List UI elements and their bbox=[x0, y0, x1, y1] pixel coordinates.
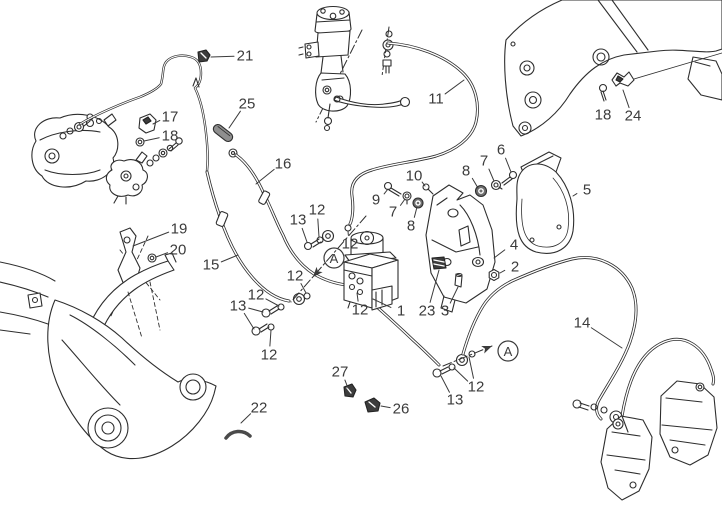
callout-label: 7 bbox=[480, 153, 488, 170]
nut-18 bbox=[136, 138, 144, 146]
leader-line bbox=[241, 414, 251, 423]
callout-21: 21 bbox=[211, 48, 253, 65]
leader-line bbox=[573, 194, 577, 196]
callout-label: 25 bbox=[239, 96, 256, 113]
brake-hose-15 bbox=[207, 172, 310, 305]
callout-label: 14 bbox=[574, 315, 591, 332]
callout-label: 19 bbox=[171, 221, 188, 238]
callout-25: 25 bbox=[229, 96, 255, 129]
callout-6: 6 bbox=[497, 142, 511, 173]
callout-13: 13 bbox=[441, 376, 463, 409]
brake-caliper-right bbox=[660, 381, 717, 465]
callout-label: 12 bbox=[309, 202, 326, 219]
leader-line bbox=[445, 80, 464, 94]
leader-line bbox=[441, 376, 449, 392]
brake-caliper-left bbox=[601, 416, 652, 500]
callout-label: 17 bbox=[162, 109, 179, 126]
callout-label: 16 bbox=[275, 156, 292, 173]
leader-line bbox=[472, 178, 478, 188]
callout-13: 13 bbox=[290, 212, 307, 243]
frame-section bbox=[505, 0, 722, 136]
callout-17: 17 bbox=[153, 109, 178, 126]
callout-16: 16 bbox=[256, 156, 291, 185]
callout-26: 26 bbox=[381, 401, 409, 418]
callout-10: 10 bbox=[406, 168, 425, 187]
callout-label: 27 bbox=[332, 364, 349, 381]
leader-line bbox=[249, 308, 263, 312]
leader-line bbox=[270, 330, 271, 346]
callout-label: 12 bbox=[352, 302, 369, 319]
callout-label: 12 bbox=[342, 236, 359, 253]
leader-line bbox=[266, 299, 279, 306]
parts-diagram-canvas: AA 2125171816111824678109785421920151213… bbox=[0, 0, 722, 509]
marker-letter: A bbox=[330, 251, 339, 266]
exploded-diagram-svg: AA 2125171816111824678109785421920151213… bbox=[0, 0, 722, 509]
swingarm bbox=[0, 253, 216, 459]
leader-line bbox=[244, 313, 254, 329]
callout-label: 3 bbox=[441, 303, 449, 320]
callout-label: 23 bbox=[419, 303, 436, 320]
callout-18: 18 bbox=[595, 107, 612, 124]
callout-label: 12 bbox=[261, 347, 278, 364]
callout-14: 14 bbox=[574, 315, 622, 349]
callout-8: 8 bbox=[462, 163, 478, 189]
frame-screw bbox=[600, 85, 607, 102]
callout-7: 7 bbox=[389, 199, 405, 221]
callout-label: 2 bbox=[511, 259, 519, 276]
hose-guide-22 bbox=[226, 431, 250, 438]
callout-20: 20 bbox=[156, 242, 186, 259]
callout-label: 6 bbox=[497, 142, 505, 159]
callout-12: 12 bbox=[309, 202, 326, 238]
section-marker-A: A bbox=[443, 341, 518, 366]
abs-mounting-bracket bbox=[426, 185, 495, 312]
callout-label: 9 bbox=[372, 192, 380, 209]
leader-line bbox=[133, 232, 169, 246]
leader-line bbox=[400, 199, 405, 205]
leader-line bbox=[591, 328, 622, 348]
nut-2 bbox=[489, 270, 499, 281]
callout-label: 15 bbox=[203, 257, 220, 274]
assembly-axis-line bbox=[443, 346, 492, 366]
callout-label: 21 bbox=[237, 48, 254, 65]
callout-label: 13 bbox=[290, 212, 307, 229]
hose-bracket-24 bbox=[612, 72, 634, 86]
callout-27: 27 bbox=[332, 364, 349, 389]
callout-5: 5 bbox=[573, 182, 591, 199]
callout-label: 12 bbox=[468, 379, 485, 396]
nut-20 bbox=[148, 254, 156, 262]
leader-line bbox=[256, 169, 274, 184]
callout-24: 24 bbox=[623, 90, 641, 125]
callout-label: 12 bbox=[287, 268, 304, 285]
leader-line bbox=[144, 138, 159, 141]
pin-3 bbox=[455, 274, 462, 288]
callout-12: 12 bbox=[287, 268, 306, 294]
callout-22: 22 bbox=[241, 400, 267, 424]
callout-label: 8 bbox=[407, 218, 415, 235]
direction-arrow-icon bbox=[481, 342, 493, 353]
leader-line bbox=[623, 90, 629, 108]
callout-label: 24 bbox=[625, 108, 642, 125]
callout-7: 7 bbox=[480, 153, 494, 182]
leader-line bbox=[384, 189, 388, 194]
hose-clip-26 bbox=[365, 398, 380, 412]
pipe-mount-bolts bbox=[252, 304, 284, 335]
callout-12: 12 bbox=[261, 330, 278, 364]
leader-line bbox=[454, 368, 468, 381]
callout-label: 4 bbox=[510, 237, 518, 254]
callout-9: 9 bbox=[372, 189, 388, 209]
rubber-damper-23 bbox=[432, 257, 446, 269]
callout-8: 8 bbox=[407, 207, 417, 235]
leader-line bbox=[229, 111, 240, 128]
callout-label: 10 bbox=[406, 168, 423, 185]
callout-label: 12 bbox=[248, 287, 265, 304]
leader-line bbox=[221, 255, 238, 262]
leader-line bbox=[211, 56, 234, 57]
hose-clip-27 bbox=[344, 384, 356, 397]
callout-label: 8 bbox=[462, 163, 470, 180]
callout-label: 13 bbox=[447, 392, 464, 409]
abs-cover-plate bbox=[516, 152, 573, 253]
callout-2: 2 bbox=[500, 259, 519, 276]
callout-11: 11 bbox=[428, 80, 464, 108]
callout-label: 13 bbox=[230, 298, 247, 315]
callout-4: 4 bbox=[494, 237, 518, 259]
callout-label: 5 bbox=[583, 182, 591, 199]
pipe-clip-21 bbox=[198, 50, 210, 62]
callout-label: 18 bbox=[595, 107, 612, 124]
leader-line bbox=[489, 169, 494, 181]
leader-line bbox=[500, 270, 505, 273]
callout-15: 15 bbox=[203, 255, 238, 274]
callout-label: 26 bbox=[393, 401, 410, 418]
callout-label: 22 bbox=[251, 400, 268, 417]
master-cylinder bbox=[299, 7, 410, 131]
callout-label: 20 bbox=[170, 242, 187, 259]
marker-letter: A bbox=[504, 344, 513, 359]
leader-line bbox=[381, 406, 390, 408]
callout-label: 1 bbox=[397, 303, 405, 320]
callout-label: 18 bbox=[162, 128, 179, 145]
callout-label: 11 bbox=[428, 91, 444, 108]
leader-line bbox=[494, 250, 505, 258]
leader-line bbox=[318, 219, 319, 237]
leader-line bbox=[414, 207, 417, 217]
leader-line bbox=[469, 357, 474, 378]
leader-line bbox=[506, 158, 511, 172]
leader-line bbox=[302, 228, 307, 242]
front-sensor-unit bbox=[32, 114, 118, 187]
callout-label: 7 bbox=[389, 204, 397, 221]
